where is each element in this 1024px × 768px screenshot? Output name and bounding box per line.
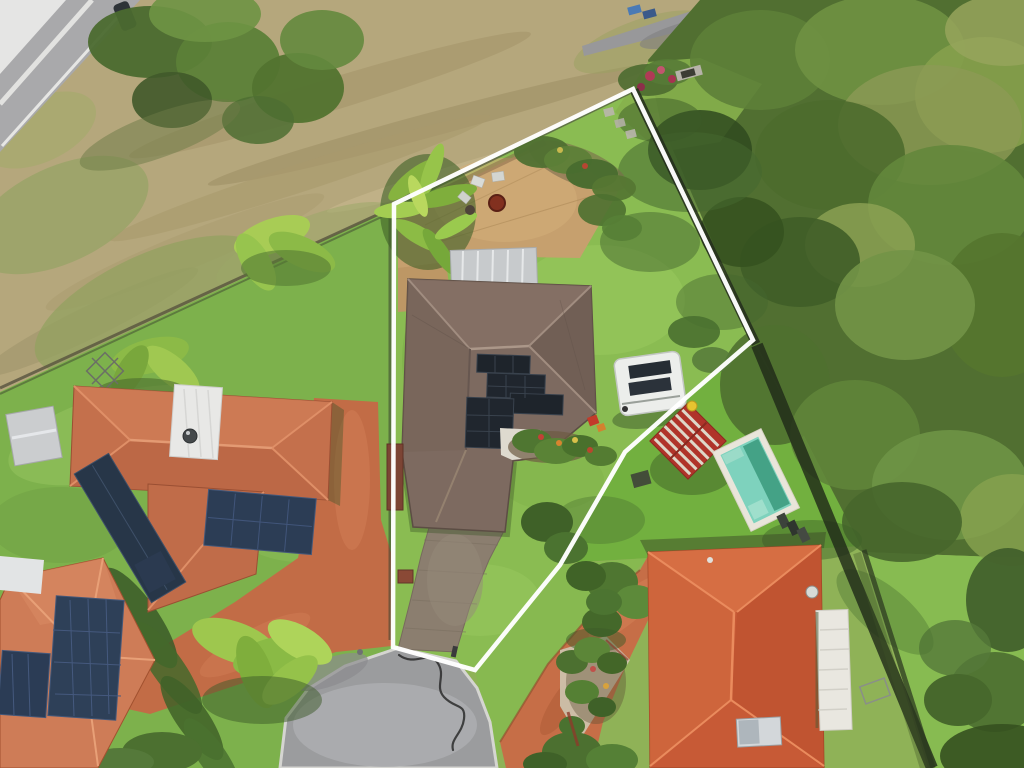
solar-array	[477, 354, 531, 374]
patio-chair	[492, 171, 505, 182]
roof-vent	[806, 586, 818, 598]
patio-corrugation	[819, 689, 848, 690]
flower-patch	[645, 71, 655, 81]
bl-solar-array	[0, 650, 50, 717]
flower-patch	[557, 147, 563, 153]
patio-table	[465, 205, 475, 215]
flower-patch	[538, 434, 544, 440]
pool-toy	[687, 401, 697, 411]
flower-patch	[657, 66, 665, 74]
flower-patch	[572, 437, 578, 443]
letterbox	[398, 570, 413, 583]
garden-shrub	[544, 532, 588, 564]
fire-pit	[489, 195, 505, 211]
flower-patch	[668, 75, 676, 83]
garden-shrub	[692, 347, 732, 373]
tree-canopy	[842, 482, 962, 562]
patio-corrugation	[819, 669, 848, 670]
satellite-dish	[183, 429, 197, 443]
garden-shrub	[566, 561, 606, 591]
br-solar-hotwater-panel	[738, 719, 759, 744]
caravan-wheel	[622, 406, 628, 412]
palm-shadow	[241, 250, 331, 286]
bl-solar-array	[48, 596, 124, 720]
flower-patch	[582, 163, 588, 169]
garden-shrub	[668, 316, 720, 348]
garden-shrub	[588, 697, 616, 717]
garden-shed	[6, 406, 62, 466]
solar-array	[510, 393, 564, 415]
tree-canopy	[835, 250, 975, 360]
flower-patch	[590, 666, 596, 672]
bl-pergola	[0, 556, 44, 594]
aerial-photo	[0, 0, 1024, 768]
garden-shrub	[586, 589, 622, 615]
flower-patch	[556, 440, 562, 446]
flower-patch	[603, 683, 609, 689]
driveway-light	[427, 534, 483, 626]
aerial-photo-canvas	[0, 0, 1024, 768]
satellite-dish-feed	[186, 431, 190, 435]
flower-patch	[587, 447, 593, 453]
patio-corrugation	[818, 709, 847, 710]
patio-corrugation	[820, 649, 849, 650]
roof-vent	[707, 557, 713, 563]
tree-canopy	[280, 10, 364, 70]
palm-shadow	[202, 676, 322, 724]
road-drain	[357, 649, 363, 655]
garden-shrub	[602, 215, 642, 241]
patio-corrugation	[820, 629, 849, 630]
garden-shrub	[924, 674, 992, 726]
